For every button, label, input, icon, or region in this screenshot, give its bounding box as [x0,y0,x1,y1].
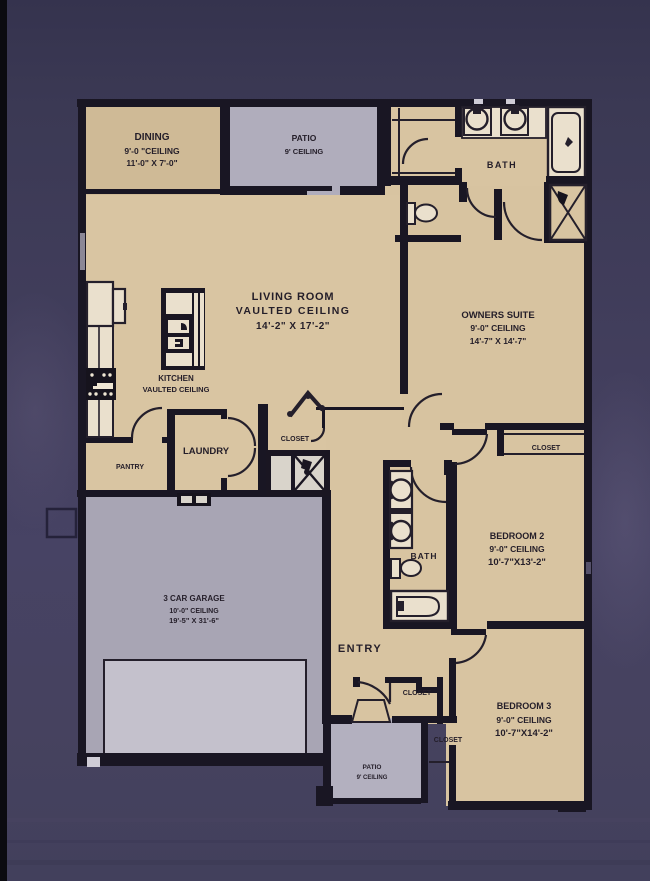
svg-text:19'-5" X 31'-6": 19'-5" X 31'-6" [169,616,219,625]
svg-text:BEDROOM 3: BEDROOM 3 [497,701,552,711]
svg-text:9' CEILING: 9' CEILING [285,147,324,156]
svg-text:3 CAR GARAGE: 3 CAR GARAGE [163,594,225,603]
svg-text:KITCHEN: KITCHEN [158,374,194,383]
svg-text:10'-7"X13'-2": 10'-7"X13'-2" [488,557,546,568]
svg-text:VAULTED CEILING: VAULTED CEILING [236,305,351,317]
svg-text:BEDROOM 2: BEDROOM 2 [490,531,545,541]
svg-text:9'-0" CEILING: 9'-0" CEILING [489,544,545,554]
svg-text:9' CEILING: 9' CEILING [357,775,388,781]
svg-text:10'-7"X14'-2": 10'-7"X14'-2" [495,728,553,739]
svg-text:ENTRY: ENTRY [338,643,382,655]
svg-text:11'-0" X 7'-0": 11'-0" X 7'-0" [126,158,177,168]
svg-text:LIVING ROOM: LIVING ROOM [252,291,335,303]
svg-text:14'-7" X 14'-7": 14'-7" X 14'-7" [470,336,527,346]
svg-text:PANTRY: PANTRY [116,464,144,471]
svg-text:LAUNDRY: LAUNDRY [183,446,230,457]
svg-text:PATIO: PATIO [363,764,382,771]
svg-text:PATIO: PATIO [292,133,317,143]
svg-text:10'-0" CEILING: 10'-0" CEILING [169,608,219,615]
svg-text:9'-0" CEILING: 9'-0" CEILING [496,715,552,725]
svg-text:CLOSET: CLOSET [532,445,561,452]
svg-text:9'-0 "CEILING: 9'-0 "CEILING [124,146,180,156]
svg-text:CLOSET: CLOSET [281,436,310,443]
svg-text:BATH: BATH [487,160,517,170]
svg-text:CLOSET: CLOSET [434,737,463,744]
svg-text:14'-2" X 17'-2": 14'-2" X 17'-2" [256,321,330,332]
svg-text:VAULTED CEILING: VAULTED CEILING [143,385,210,394]
svg-text:OWNERS SUITE: OWNERS SUITE [461,310,534,321]
svg-text:BATH: BATH [411,551,438,561]
svg-text:CLOSET: CLOSET [403,690,432,697]
svg-text:9'-0" CEILING: 9'-0" CEILING [470,323,526,333]
svg-text:DINING: DINING [135,132,170,143]
